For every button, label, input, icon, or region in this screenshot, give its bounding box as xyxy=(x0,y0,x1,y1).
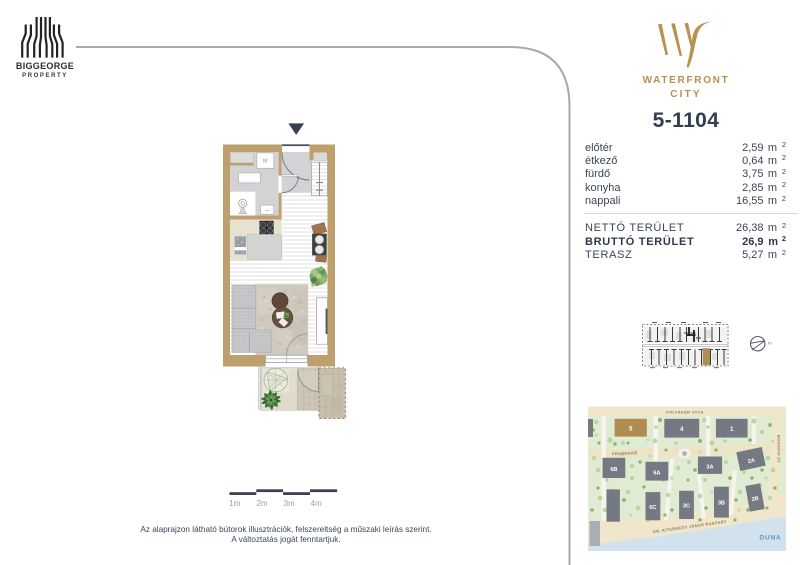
svg-text:3m: 3m xyxy=(284,499,295,508)
svg-text:POLYÁKÉR UTCA: POLYÁKÉR UTCA xyxy=(666,410,704,415)
svg-text:M: M xyxy=(263,159,268,165)
svg-text:m: m xyxy=(768,341,772,346)
svg-text:5: 5 xyxy=(629,426,633,433)
svg-text:PROMENÁD: PROMENÁD xyxy=(612,450,637,456)
svg-text:6A: 6A xyxy=(653,471,660,477)
svg-text:2B: 2B xyxy=(751,496,759,503)
svg-text:4m: 4m xyxy=(311,499,322,508)
svg-text:6B: 6B xyxy=(610,467,617,473)
svg-text:1m: 1m xyxy=(229,499,240,508)
svg-text:2m: 2m xyxy=(256,499,267,508)
svg-text:1: 1 xyxy=(730,426,734,433)
svg-text:BOGDÁNI ÚT: BOGDÁNI ÚT xyxy=(777,435,782,464)
svg-text:3A: 3A xyxy=(706,465,713,471)
svg-text:6C: 6C xyxy=(649,505,656,511)
svg-text:3B: 3B xyxy=(718,501,725,507)
svg-text:DUNA: DUNA xyxy=(759,535,781,542)
svg-text:3C: 3C xyxy=(683,504,690,510)
svg-text:4: 4 xyxy=(680,426,684,433)
